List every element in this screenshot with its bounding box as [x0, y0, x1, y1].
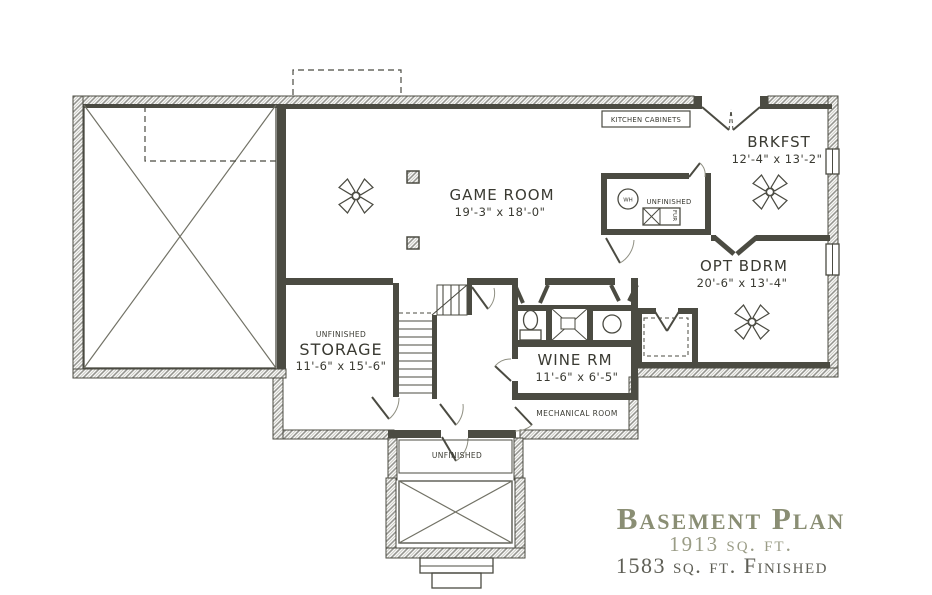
dim-label-wine-rm: 11'-6" x 6'-5" [536, 370, 619, 384]
column-icon [407, 171, 419, 183]
utility-fixtures: WH FUR [618, 189, 680, 225]
room-label-game-room: GAME ROOM [449, 186, 554, 204]
finish-label-storage: UNFINISHED [316, 330, 366, 339]
exterior-walls [73, 96, 838, 558]
column-icon [407, 237, 419, 249]
door-hall-b [440, 404, 463, 425]
room-label-brkfst: BRKFST [747, 133, 811, 151]
door-mechanical [515, 407, 532, 431]
window-brkfst [826, 149, 839, 174]
steps [420, 558, 493, 588]
closet-shelf-dashed [644, 318, 688, 356]
door-utility [689, 163, 705, 177]
water-heater-symbol: WH [618, 189, 638, 209]
ceiling-fan-icon [735, 305, 769, 339]
basement-floor-plan: WH FUR KITCHEN CABINETS [0, 0, 932, 595]
furnace-label: FUR [671, 210, 677, 221]
kitchen-cabinets-label: KITCHEN CABINETS [611, 116, 681, 124]
door-wine-rm [495, 359, 511, 381]
room-labels: GAME ROOM 19'-3" x 18'-0" BRKFST 12'-4" … [296, 133, 823, 460]
dim-label-game-room: 19'-3" x 18'-0" [455, 205, 546, 219]
cased-opening-bath-hall [515, 285, 637, 303]
ceiling-fan-icon [753, 175, 787, 209]
dim-label-storage: 11'-6" x 15'-6" [296, 359, 387, 373]
window-opt-bdrm [826, 244, 839, 275]
door-opt-bdrm-entry [606, 238, 634, 263]
furnace-symbol: FUR [643, 208, 680, 225]
shower-symbol [551, 308, 588, 341]
dashed-overhead-line [145, 106, 277, 161]
room-label-opt-bdrm: OPT BDRM [700, 257, 788, 275]
kitchen-cabinets-callout: KITCHEN CABINETS [602, 111, 690, 127]
ceiling-fan-icon [339, 179, 373, 213]
door-hall-a [372, 397, 399, 419]
room-label-mechanical: MECHANICAL ROOM [536, 409, 617, 418]
columns [407, 171, 419, 249]
dim-label-brkfst: 12'-4" x 13'-2" [732, 152, 823, 166]
double-door-top [702, 107, 760, 130]
dashed-bumpout-above [293, 70, 401, 95]
water-heater-label: WH [623, 198, 633, 204]
door-stairs-top [472, 287, 495, 309]
closet-bifold-doors [654, 310, 680, 331]
plan-finished-area: 1583 sq. ft. Finished [616, 553, 828, 578]
title-block: Basement Plan 1913 sq. ft. 1583 sq. ft. … [616, 501, 845, 578]
room-label-storage: STORAGE [299, 340, 382, 359]
sink-symbol [592, 308, 632, 341]
room-label-wine-rm: WINE RM [537, 351, 612, 369]
unexcavated-area [84, 70, 401, 368]
plan-title: Basement Plan [617, 501, 846, 536]
dim-label-opt-bdrm: 20'-6" x 13'-4" [697, 276, 788, 290]
bathroom-fixtures [520, 308, 632, 341]
finish-label-entry: UNFINISHED [432, 451, 482, 460]
finish-label-utility: UNFINISHED [646, 198, 691, 206]
floor-plan-page: WH FUR KITCHEN CABINETS [0, 0, 932, 595]
entry-porch [399, 440, 512, 588]
toilet-symbol [520, 311, 541, 341]
